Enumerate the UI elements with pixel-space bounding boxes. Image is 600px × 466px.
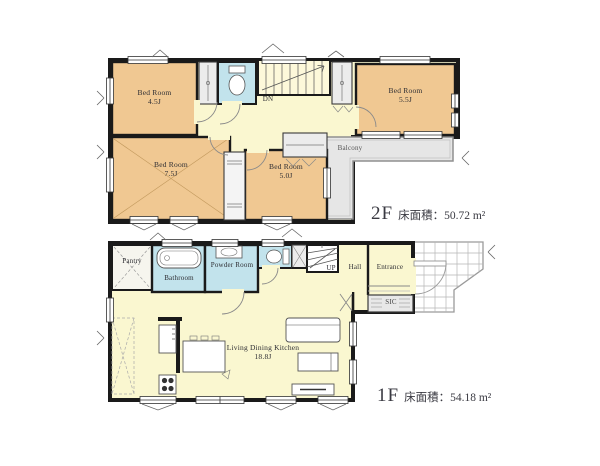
up-text: UP — [326, 264, 335, 272]
bedroom-4-5-label: Bed Room 4.5J — [112, 88, 197, 107]
room-size: 18.8J — [198, 352, 328, 361]
bedroom-5-5-label: Bed Room 5.5J — [356, 86, 455, 105]
toilet-tank-icon — [229, 66, 245, 73]
entrance-porch — [413, 242, 483, 312]
pantry-room — [112, 245, 152, 290]
floor1-number: 1F — [377, 385, 399, 406]
room-name: Bed Room — [389, 86, 423, 95]
ldk-label: Living Dining Kitchen 18.8J — [198, 343, 328, 362]
floor1-area-value: 床面積：54.18 m² — [404, 392, 491, 404]
floor-plan-drawing — [0, 0, 600, 466]
room-size: 4.5J — [112, 97, 197, 106]
toilet-bowl-icon — [229, 75, 245, 95]
floor2-area-caption: 2F床面積：50.72 m² — [371, 203, 485, 225]
room-name: Living Dining Kitchen — [227, 343, 300, 352]
entrance-text: Entrance — [377, 263, 403, 271]
room-name: Bed Room — [269, 162, 303, 171]
room-size: 7.5J — [112, 169, 230, 178]
bathroom-room — [152, 245, 205, 292]
bathroom-text: Bathroom — [164, 274, 194, 282]
1f-window-v-marks — [142, 404, 346, 410]
sic-label: SIC — [370, 298, 412, 307]
powder-room-label: Powder Room — [209, 261, 255, 270]
first-floor-plan — [97, 229, 495, 410]
closet-right-of-stairs — [332, 62, 354, 112]
bedroom-5-0-label: Bed Room 5.0J — [245, 162, 327, 181]
bathroom-label: Bathroom — [150, 274, 208, 283]
sic-text: SIC — [385, 298, 397, 306]
room-name: Bed Room — [154, 160, 188, 169]
floor-plan-page: Bed Room 4.5J Bed Room 5.5J Bed Room 7.5… — [0, 0, 600, 466]
sofa-icon — [286, 318, 340, 342]
dn-text: DN — [263, 95, 274, 103]
powder-text: Powder Room — [211, 261, 253, 269]
hall-text: Hall — [349, 263, 362, 271]
room-size: 5.5J — [356, 95, 455, 104]
room-size: 5.0J — [245, 171, 327, 180]
pantry-label: Pantry — [110, 257, 154, 266]
toilet-room-2f — [218, 62, 256, 104]
floor1-area-caption: 1F床面積：54.18 m² — [377, 385, 491, 407]
entrance-label: Entrance — [364, 263, 416, 272]
toilet-bowl-icon — [267, 250, 282, 263]
stove-icon — [159, 375, 176, 394]
balcony-label: Balcony — [323, 144, 377, 153]
pantry-text: Pantry — [122, 257, 141, 265]
floor2-area-value: 床面積：50.72 m² — [398, 210, 485, 222]
bedroom-7-5-label: Bed Room 7.5J — [112, 160, 230, 179]
floor2-number: 2F — [371, 203, 393, 224]
toilet-room-1f — [258, 245, 292, 268]
toilet-tank-icon — [283, 249, 289, 264]
stairs-down-label: DN — [254, 95, 282, 104]
stairs-down — [258, 60, 330, 95]
balcony-text: Balcony — [338, 144, 363, 152]
room-name: Bed Room — [138, 88, 172, 97]
hall-closet — [292, 245, 307, 268]
closet-left-of-wc — [199, 62, 217, 104]
2f-window-v-marks — [132, 224, 290, 230]
